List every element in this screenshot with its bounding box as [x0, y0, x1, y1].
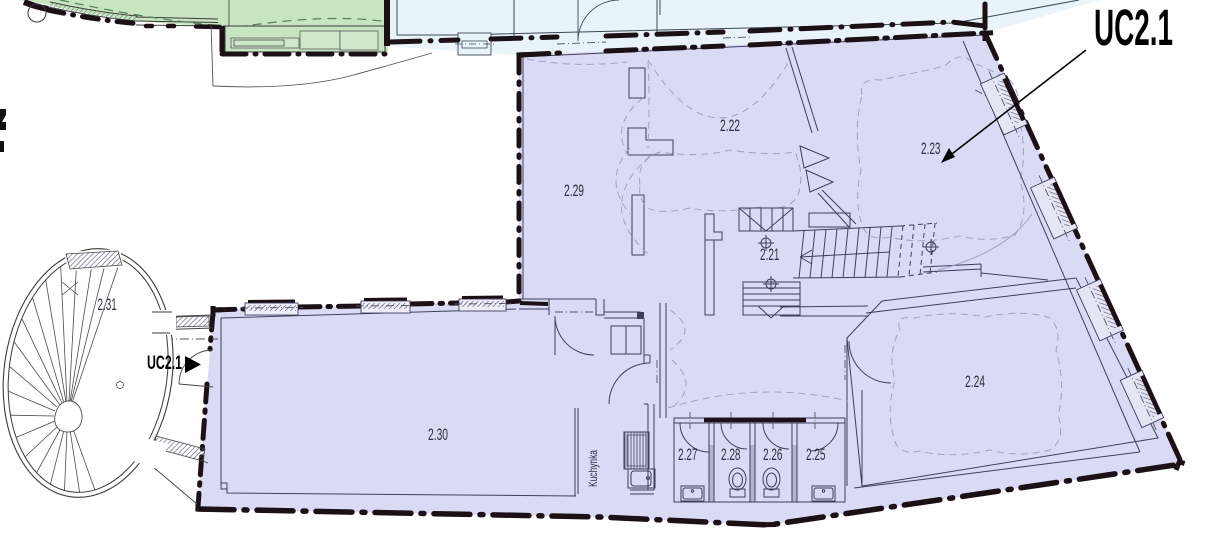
- svg-text:Kuchynka: Kuchynka: [586, 450, 600, 487]
- svg-text:2.29: 2.29: [564, 181, 584, 200]
- svg-text:2.24: 2.24: [965, 372, 985, 391]
- svg-text:2.25: 2.25: [806, 445, 826, 464]
- svg-text:2.31: 2.31: [98, 295, 117, 314]
- svg-text:2.26: 2.26: [763, 445, 783, 464]
- svg-text:2.30: 2.30: [428, 425, 448, 444]
- svg-text:2.28: 2.28: [721, 445, 741, 464]
- svg-text:UC2.1: UC2.1: [147, 352, 182, 374]
- svg-text:UC2.1: UC2.1: [1094, 0, 1173, 56]
- svg-text:2.21: 2.21: [760, 245, 780, 264]
- svg-text:2.27: 2.27: [678, 445, 698, 464]
- svg-text:2.22: 2.22: [720, 116, 740, 135]
- svg-text:2.23: 2.23: [921, 139, 941, 158]
